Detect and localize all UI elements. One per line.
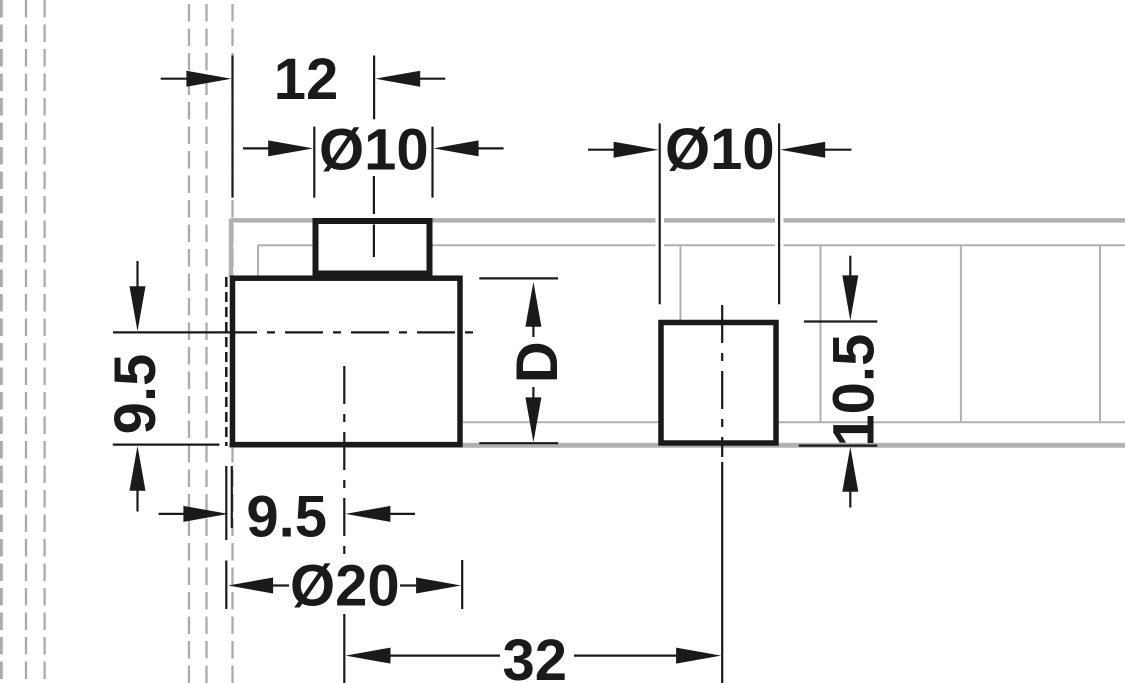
svg-text:32: 32 <box>503 628 568 683</box>
svg-text:Ø10: Ø10 <box>665 117 775 182</box>
svg-text:Ø10: Ø10 <box>319 118 429 183</box>
svg-text:12: 12 <box>274 47 339 112</box>
svg-text:10.5: 10.5 <box>822 334 887 447</box>
svg-text:Ø20: Ø20 <box>290 554 400 619</box>
svg-text:9.5: 9.5 <box>246 485 327 550</box>
svg-text:D: D <box>505 341 570 383</box>
svg-text:9.5: 9.5 <box>103 354 168 435</box>
